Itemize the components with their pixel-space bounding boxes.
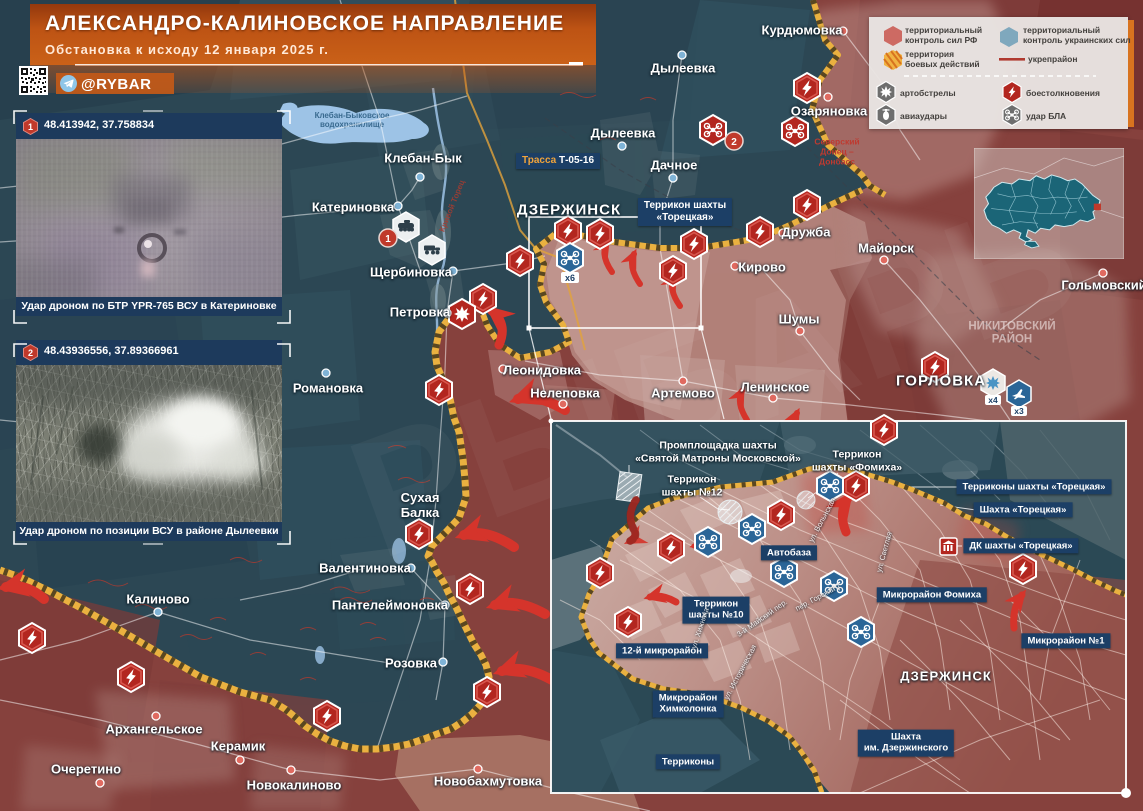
svg-text:x4: x4 <box>988 395 998 405</box>
svg-text:x3: x3 <box>1014 406 1024 416</box>
svg-text:x6: x6 <box>565 273 575 283</box>
svg-text:водохранилище: водохранилище <box>320 120 385 129</box>
svg-text:2: 2 <box>731 137 737 148</box>
svg-text:1: 1 <box>385 234 391 245</box>
